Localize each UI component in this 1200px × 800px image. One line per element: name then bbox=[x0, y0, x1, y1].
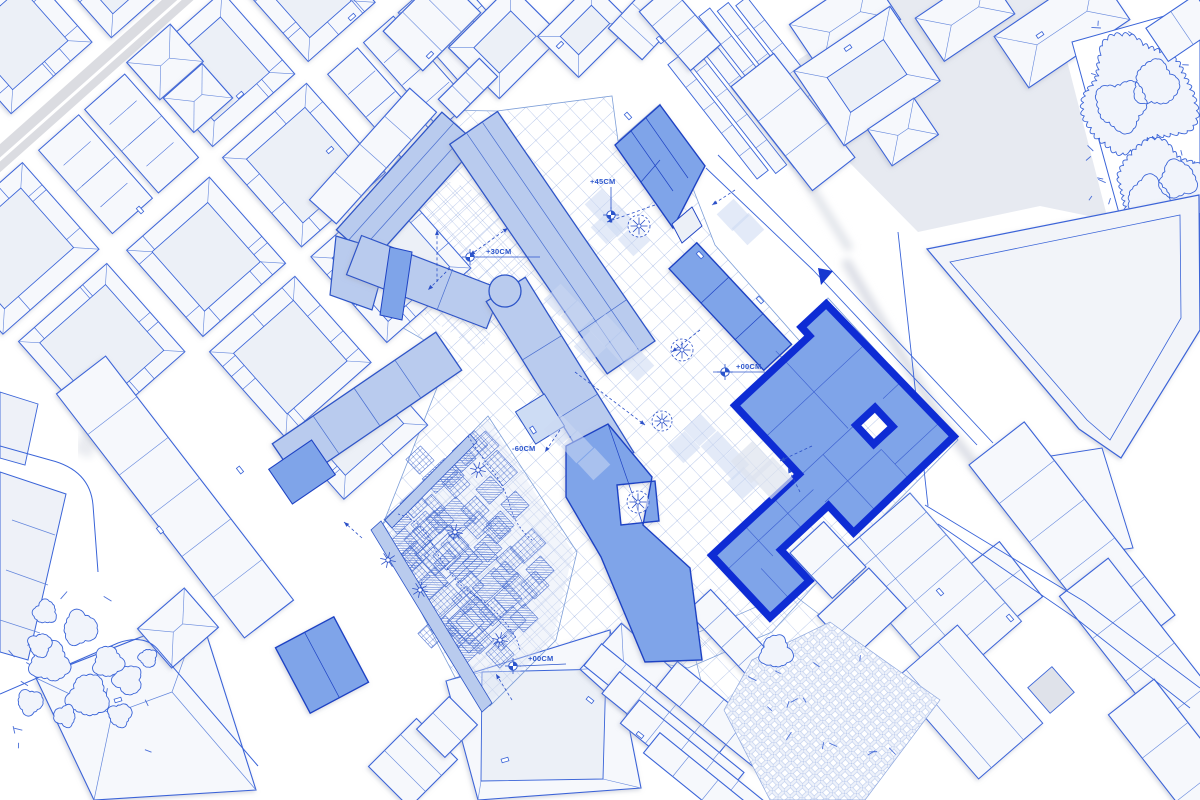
svg-text:+00CM: +00CM bbox=[528, 654, 553, 663]
svg-text:+30CM: +30CM bbox=[486, 247, 511, 256]
svg-text:+00CM: +00CM bbox=[736, 362, 761, 371]
svg-text:+45CM: +45CM bbox=[590, 177, 615, 186]
svg-text:-60CM: -60CM bbox=[512, 444, 536, 453]
